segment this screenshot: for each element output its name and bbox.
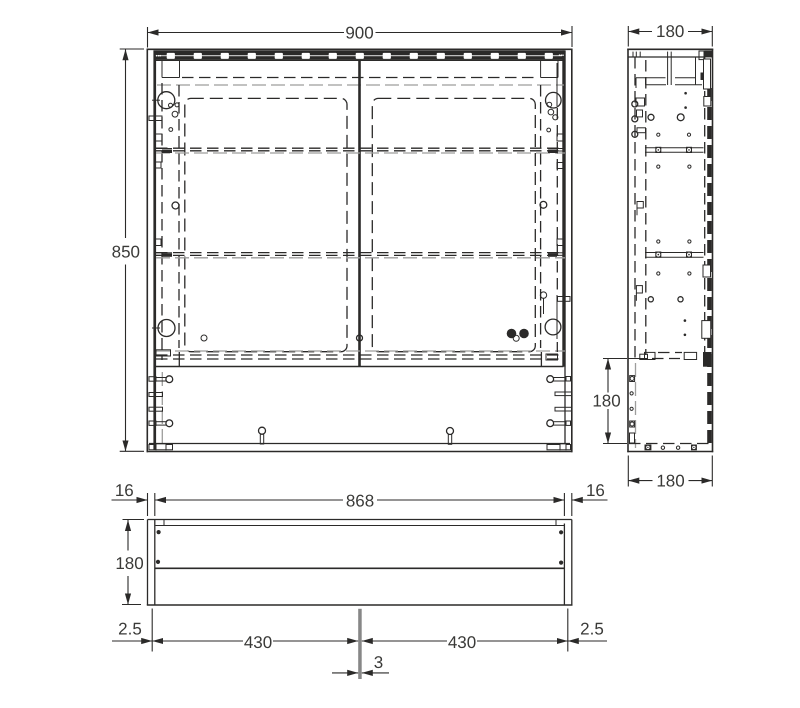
svg-text:2.5: 2.5 (580, 620, 604, 639)
svg-text:180: 180 (656, 472, 684, 491)
svg-text:16: 16 (586, 481, 605, 500)
svg-text:180: 180 (656, 22, 684, 41)
svg-text:430: 430 (244, 633, 272, 652)
svg-text:850: 850 (112, 243, 140, 262)
svg-text:180: 180 (592, 392, 620, 411)
svg-text:180: 180 (115, 554, 143, 573)
svg-text:2.5: 2.5 (118, 620, 142, 639)
svg-text:900: 900 (345, 24, 373, 43)
svg-text:3: 3 (374, 653, 383, 672)
svg-text:430: 430 (448, 633, 476, 652)
svg-text:16: 16 (115, 481, 134, 500)
svg-text:868: 868 (346, 492, 374, 511)
